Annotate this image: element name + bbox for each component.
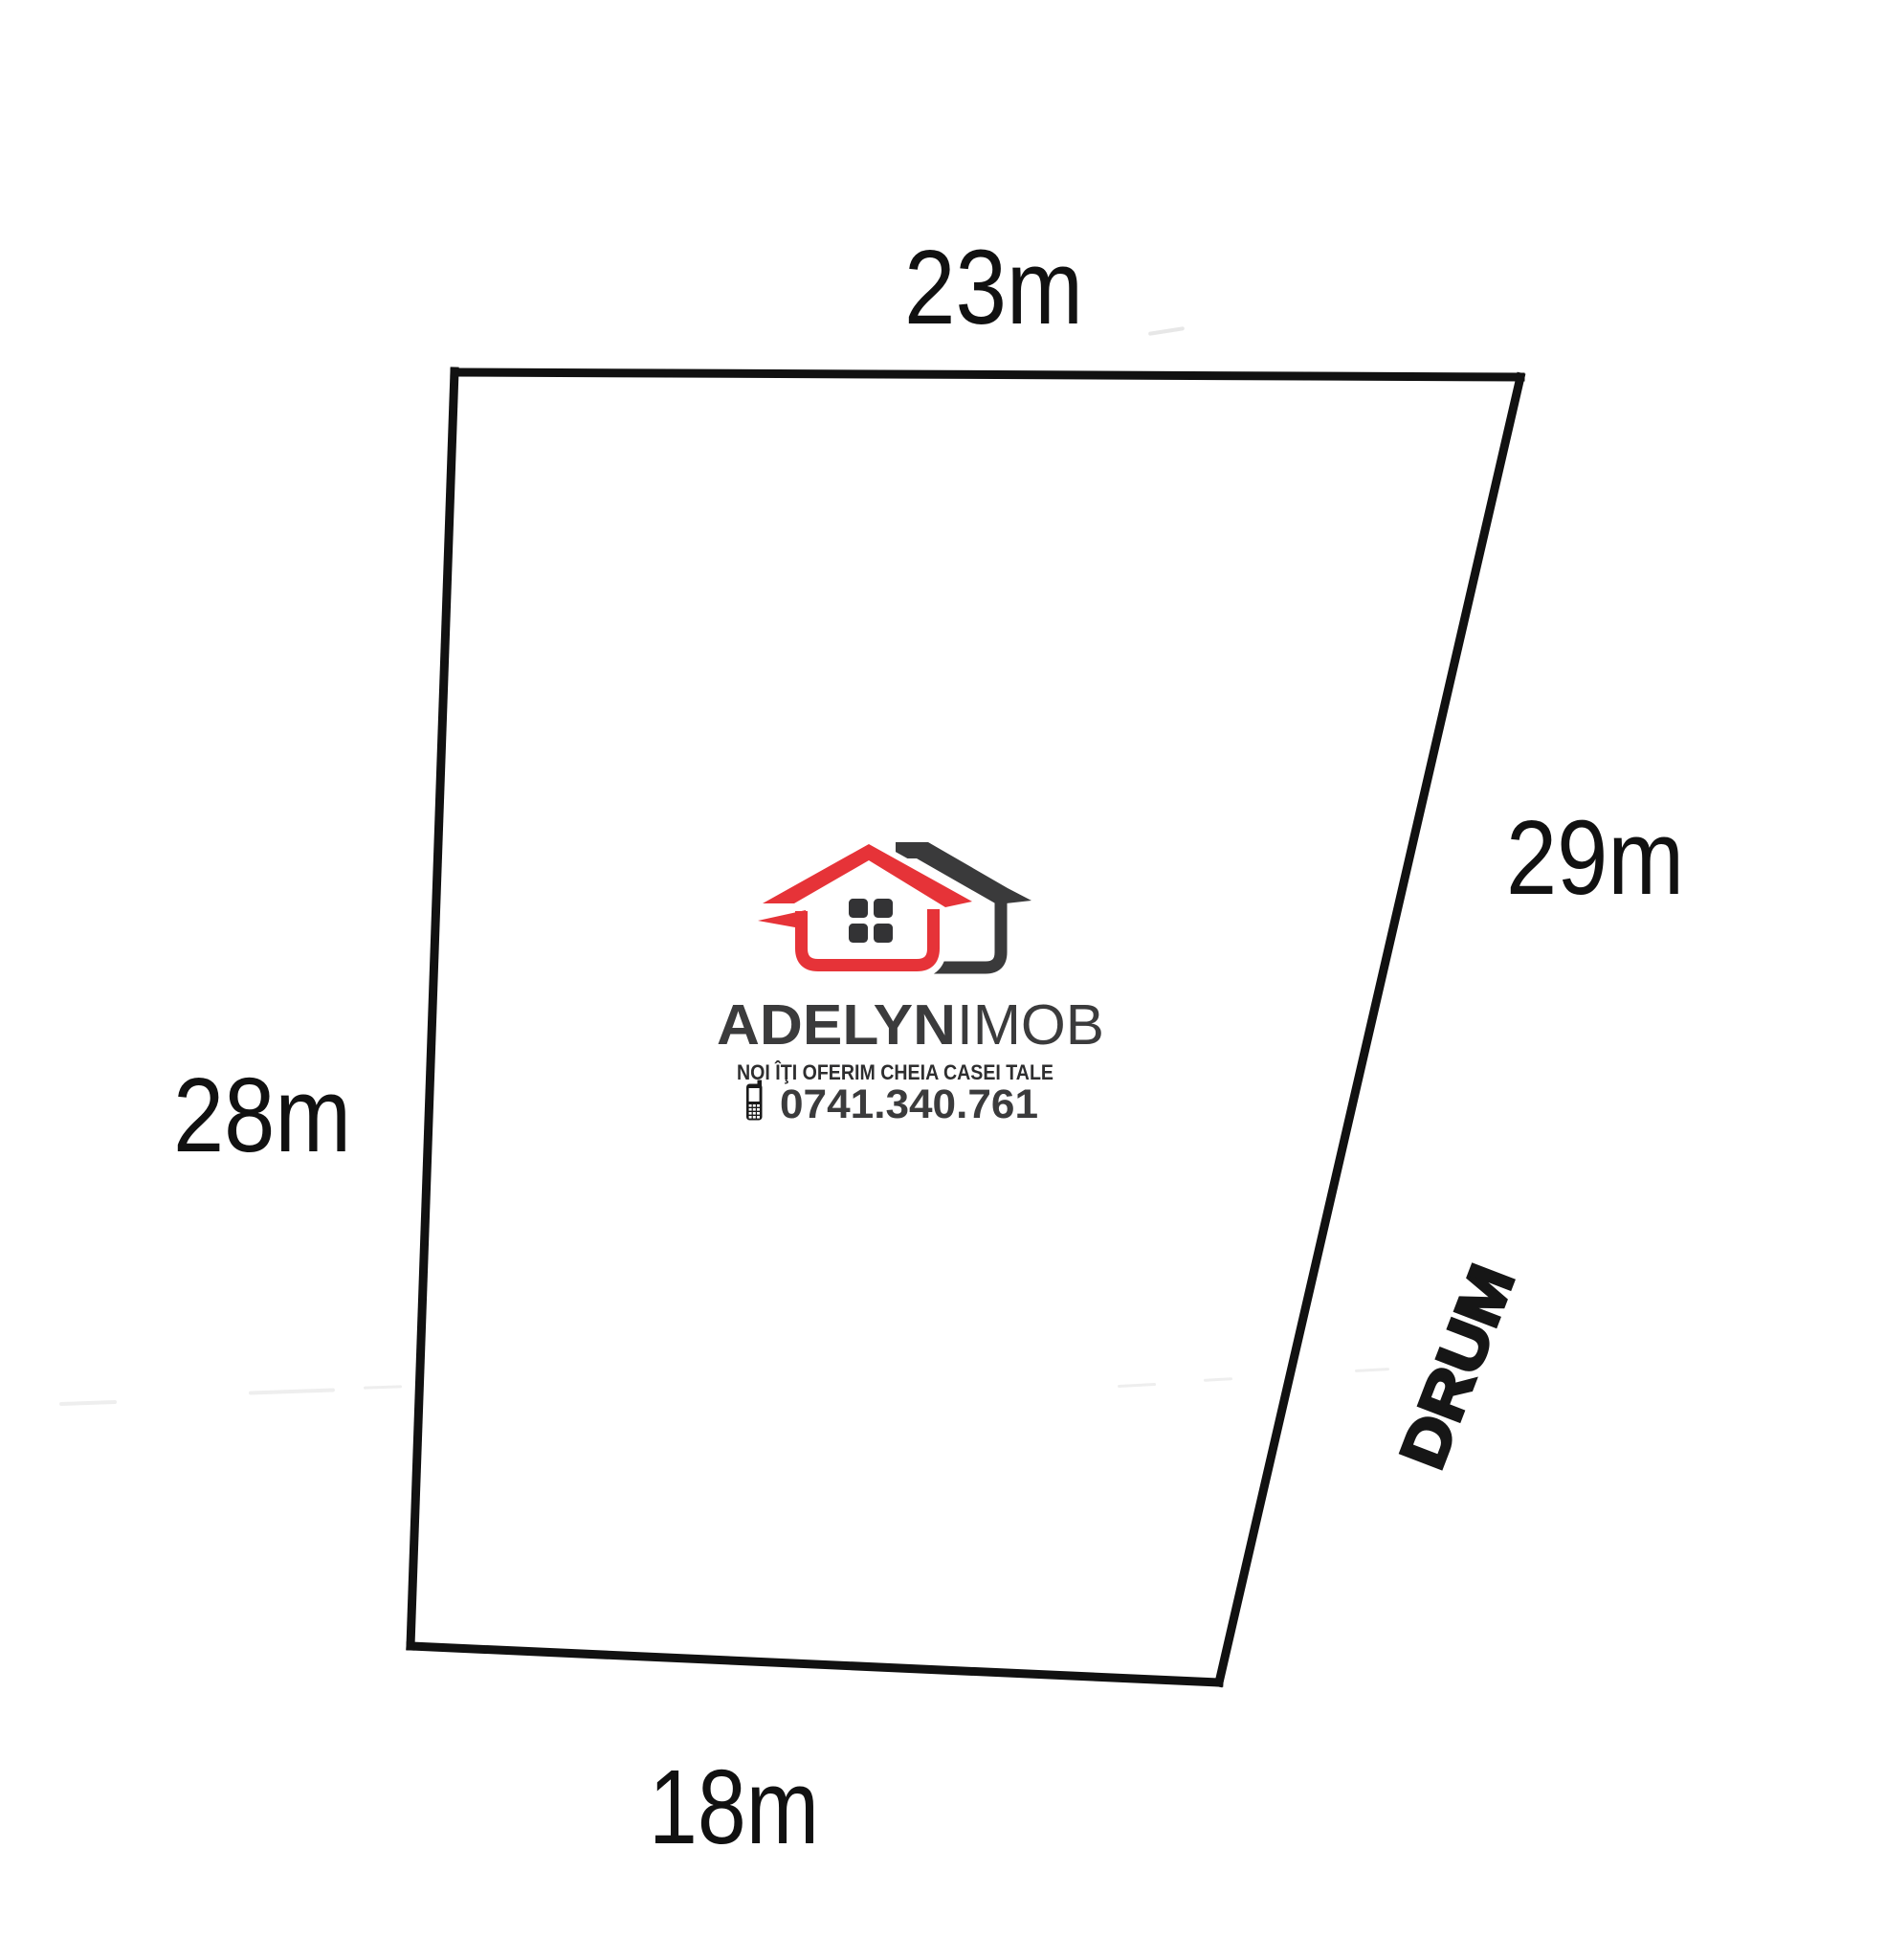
- svg-text:28m: 28m: [173, 1057, 351, 1174]
- svg-text:18m: 18m: [649, 1748, 819, 1866]
- svg-text:0741.340.761: 0741.340.761: [780, 1082, 1038, 1127]
- svg-text:IMOB: IMOB: [957, 993, 1104, 1057]
- svg-text:DRUM: DRUM: [1386, 1256, 1528, 1478]
- svg-text:NOI ÎŢI OFERIM CHEIA CASEI TAL: NOI ÎŢI OFERIM CHEIA CASEI TALE: [737, 1060, 1053, 1084]
- svg-text:29m: 29m: [1506, 799, 1684, 917]
- svg-text:ADELYN: ADELYN: [717, 993, 956, 1057]
- svg-text:23m: 23m: [904, 229, 1083, 346]
